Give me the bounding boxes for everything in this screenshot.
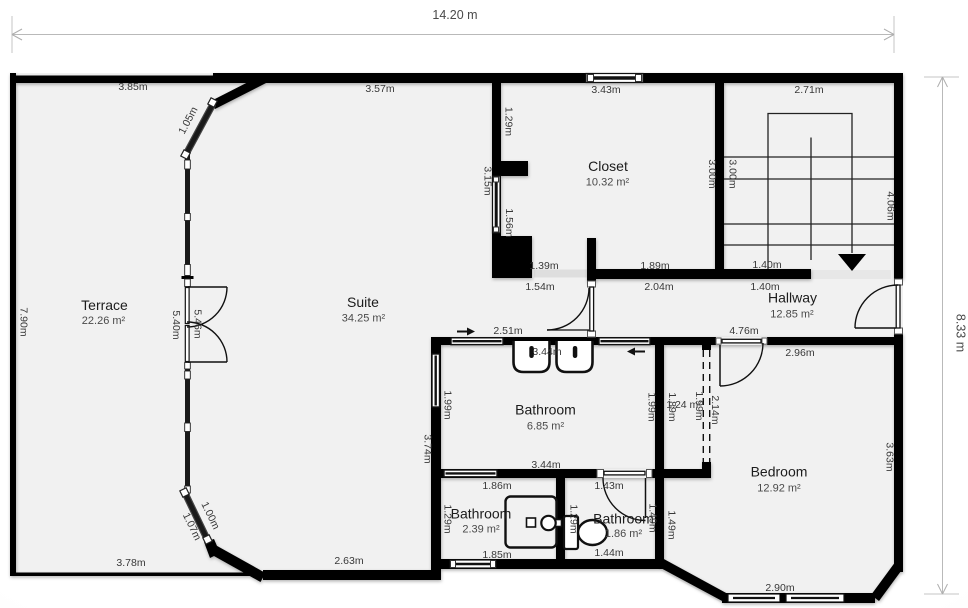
svg-text:3.00m: 3.00m [727,159,739,188]
svg-text:1.99m: 1.99m [646,392,658,421]
svg-text:2.04m: 2.04m [644,281,673,293]
svg-text:14.20 m: 14.20 m [432,8,477,22]
svg-text:8.33 m: 8.33 m [954,314,968,352]
svg-text:3.74m: 3.74m [422,434,434,463]
svg-text:1.29m: 1.29m [442,504,454,533]
svg-text:1.99m: 1.99m [442,390,454,419]
svg-text:1.56m: 1.56m [503,208,515,237]
svg-text:1.39m: 1.39m [529,260,558,272]
svg-text:34.25 m²: 34.25 m² [342,313,386,325]
svg-text:1.85m: 1.85m [482,549,511,561]
svg-text:Bathroom: Bathroom [451,506,512,522]
svg-text:2.39 m²: 2.39 m² [462,524,500,536]
svg-text:3.15m: 3.15m [482,166,494,195]
svg-text:3.44m: 3.44m [531,459,560,471]
svg-text:2.71m: 2.71m [794,84,823,96]
svg-text:3.44m: 3.44m [532,346,561,358]
svg-text:1.29m: 1.29m [503,107,515,136]
svg-text:3.57m: 3.57m [365,83,394,95]
svg-text:2.63m: 2.63m [334,555,363,567]
svg-text:1.40m: 1.40m [752,259,781,271]
svg-text:3.78m: 3.78m [116,557,145,569]
svg-text:Terrace: Terrace [81,297,128,313]
svg-text:2.96m: 2.96m [785,347,814,359]
svg-text:1.99m: 1.99m [693,391,705,420]
svg-text:Bathroom: Bathroom [593,511,654,527]
svg-text:Closet: Closet [588,158,628,174]
svg-text:1.44m: 1.44m [594,547,623,559]
svg-text:Suite: Suite [347,294,379,310]
svg-text:1.43m: 1.43m [594,480,623,492]
svg-text:1.86m: 1.86m [482,480,511,492]
svg-text:2.51m: 2.51m [493,325,522,337]
svg-text:3.63m: 3.63m [884,442,896,471]
svg-text:12.92 m²: 12.92 m² [757,483,801,495]
svg-text:1.49m: 1.49m [666,510,678,539]
svg-text:4.76m: 4.76m [729,325,758,337]
svg-text:6.85 m²: 6.85 m² [527,421,565,433]
svg-text:1.89m: 1.89m [666,392,678,421]
svg-text:2.14m: 2.14m [709,395,721,424]
svg-text:7.90m: 7.90m [18,307,30,336]
svg-text:5.40m: 5.40m [170,310,182,339]
svg-text:5.46m: 5.46m [192,309,204,338]
svg-text:3.85m: 3.85m [118,81,147,93]
svg-text:4.06m: 4.06m [885,191,897,220]
svg-text:1.29m: 1.29m [568,504,580,533]
svg-text:Bathroom: Bathroom [515,402,576,418]
svg-text:22.26 m²: 22.26 m² [82,315,126,327]
svg-text:1.89m: 1.89m [640,260,669,272]
svg-text:1.54m: 1.54m [525,281,554,293]
svg-text:1.86 m²: 1.86 m² [605,528,643,540]
svg-text:10.32 m²: 10.32 m² [586,177,630,189]
svg-text:1.40m: 1.40m [750,281,779,293]
svg-text:Bedroom: Bedroom [751,464,808,480]
svg-text:12.85 m²: 12.85 m² [770,309,814,321]
svg-text:3.00m: 3.00m [706,159,718,188]
svg-text:3.43m: 3.43m [591,84,620,96]
svg-text:2.90m: 2.90m [765,582,794,594]
svg-text:1.49m: 1.49m [647,503,659,532]
